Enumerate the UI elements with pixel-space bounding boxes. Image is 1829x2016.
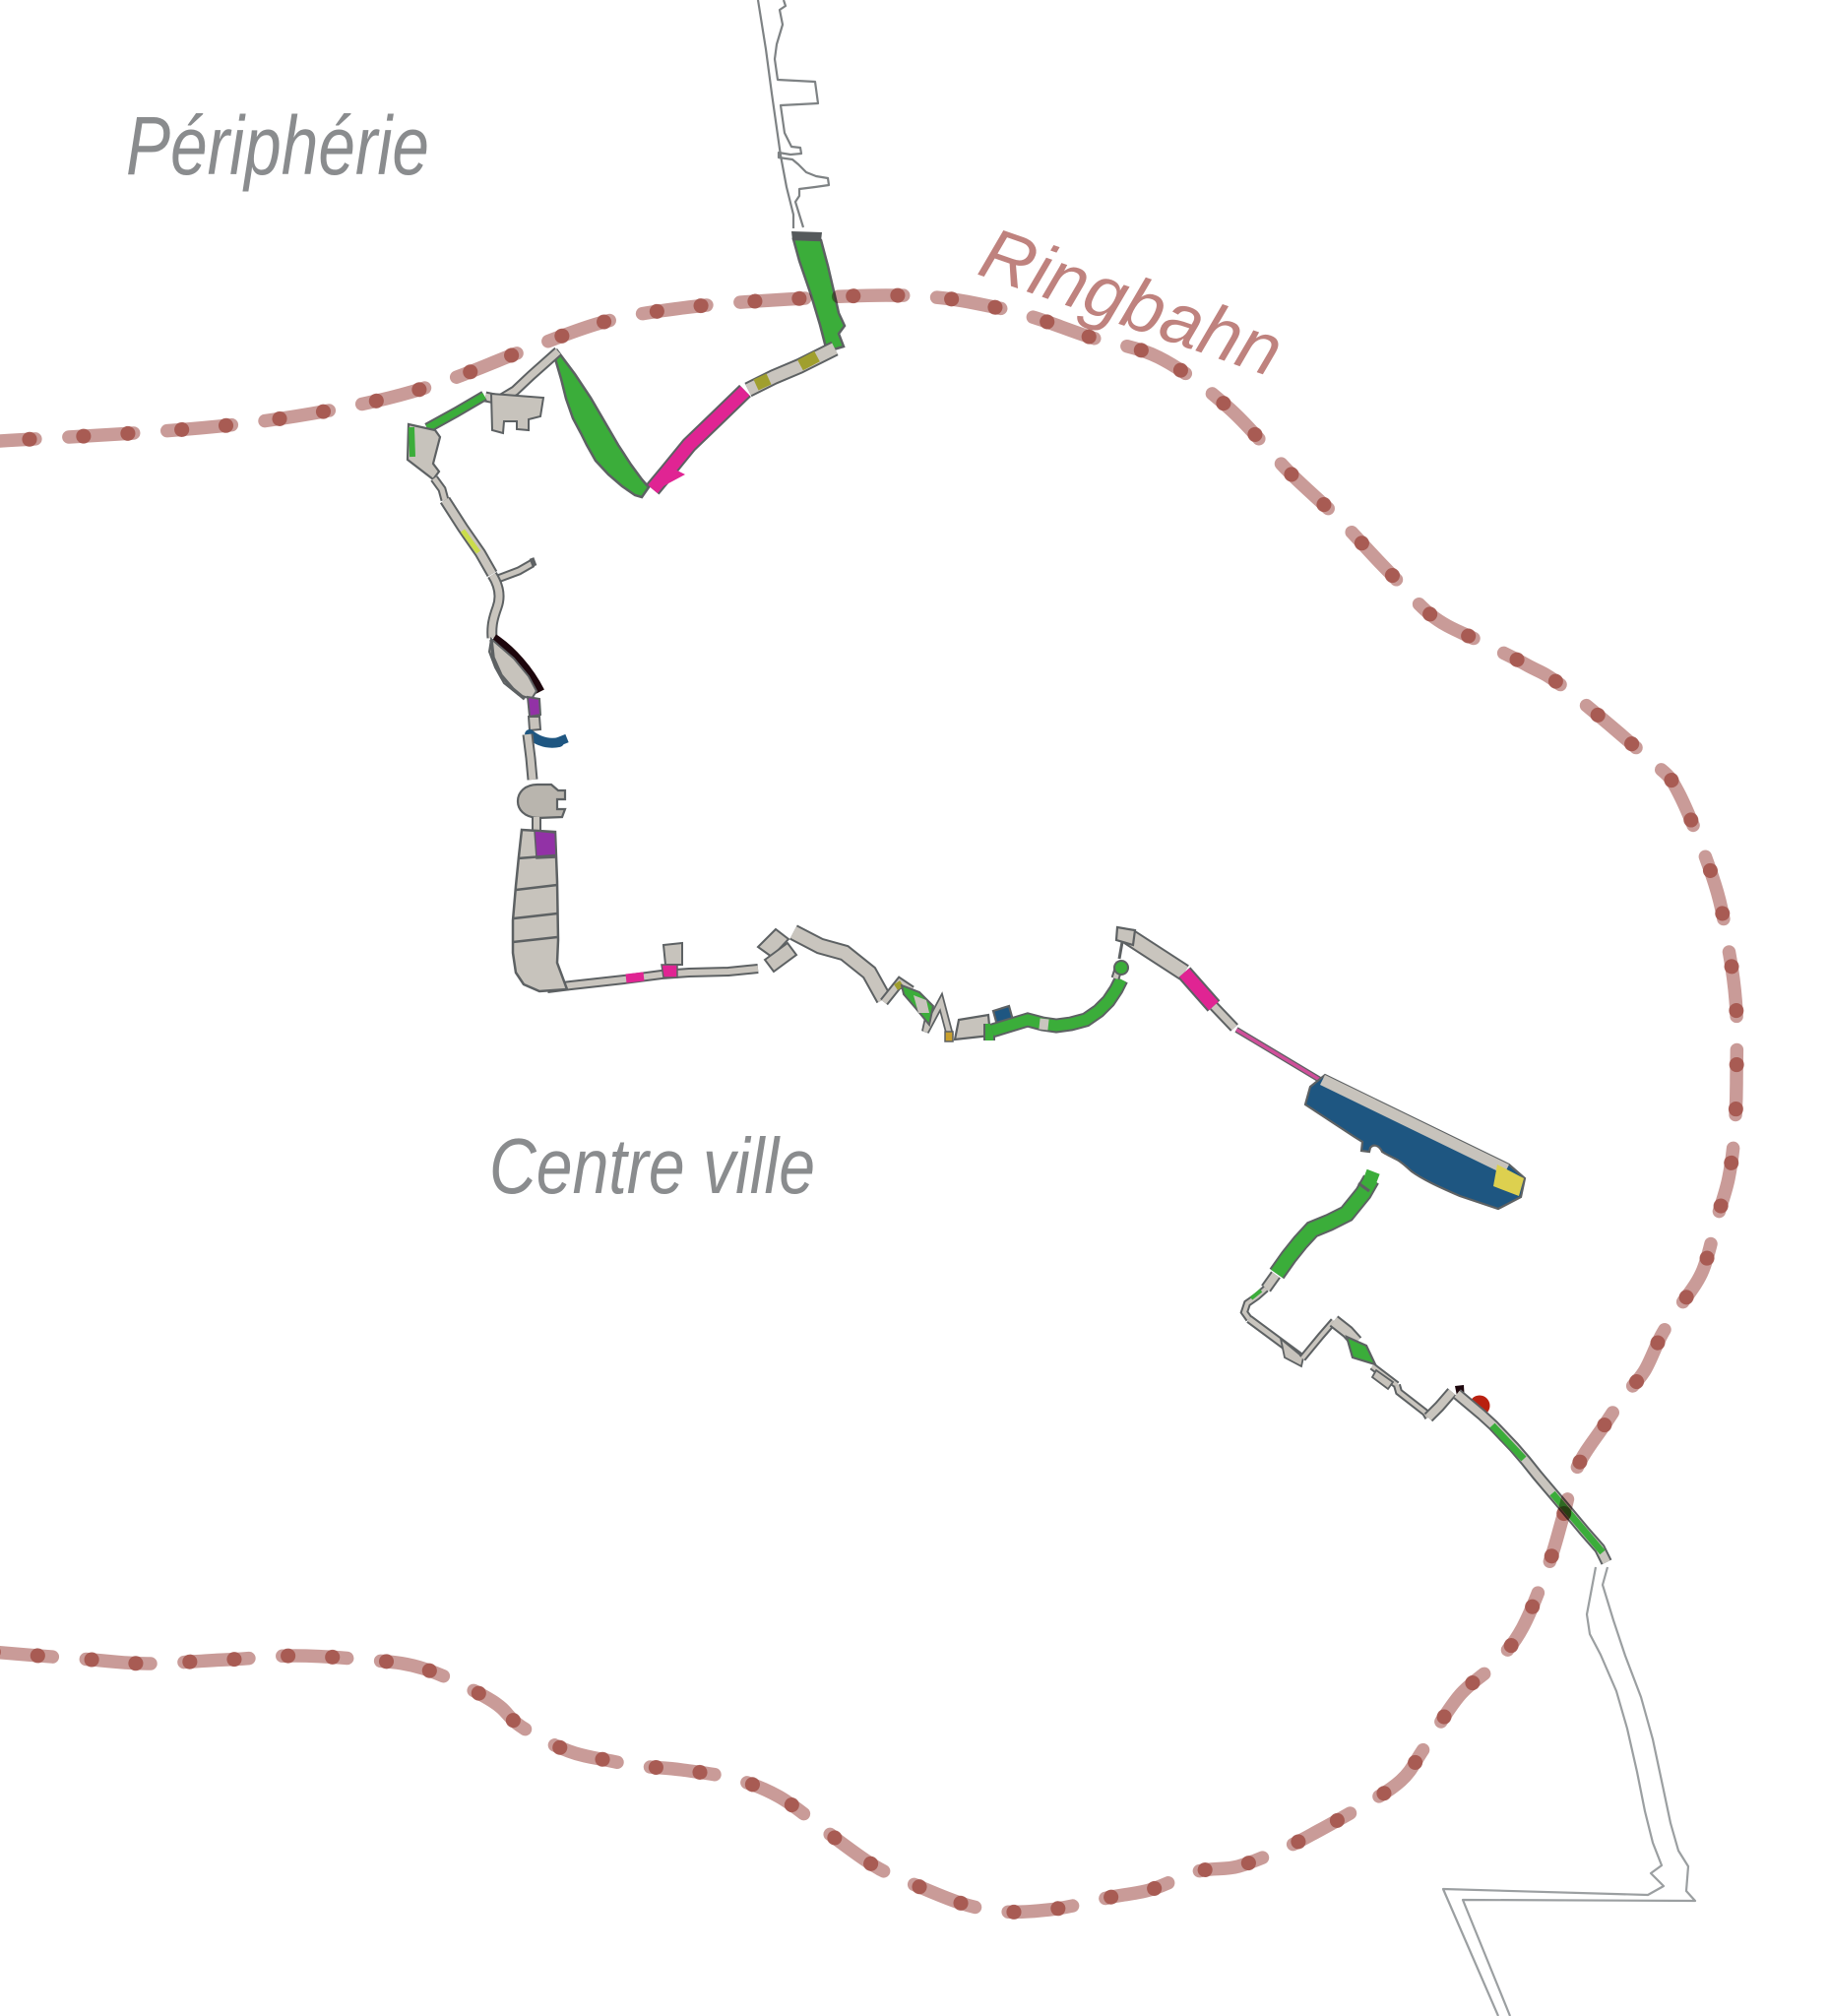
svg-text:Centre ville: Centre ville bbox=[489, 1122, 815, 1210]
svg-text:Périphérie: Périphérie bbox=[126, 99, 429, 192]
